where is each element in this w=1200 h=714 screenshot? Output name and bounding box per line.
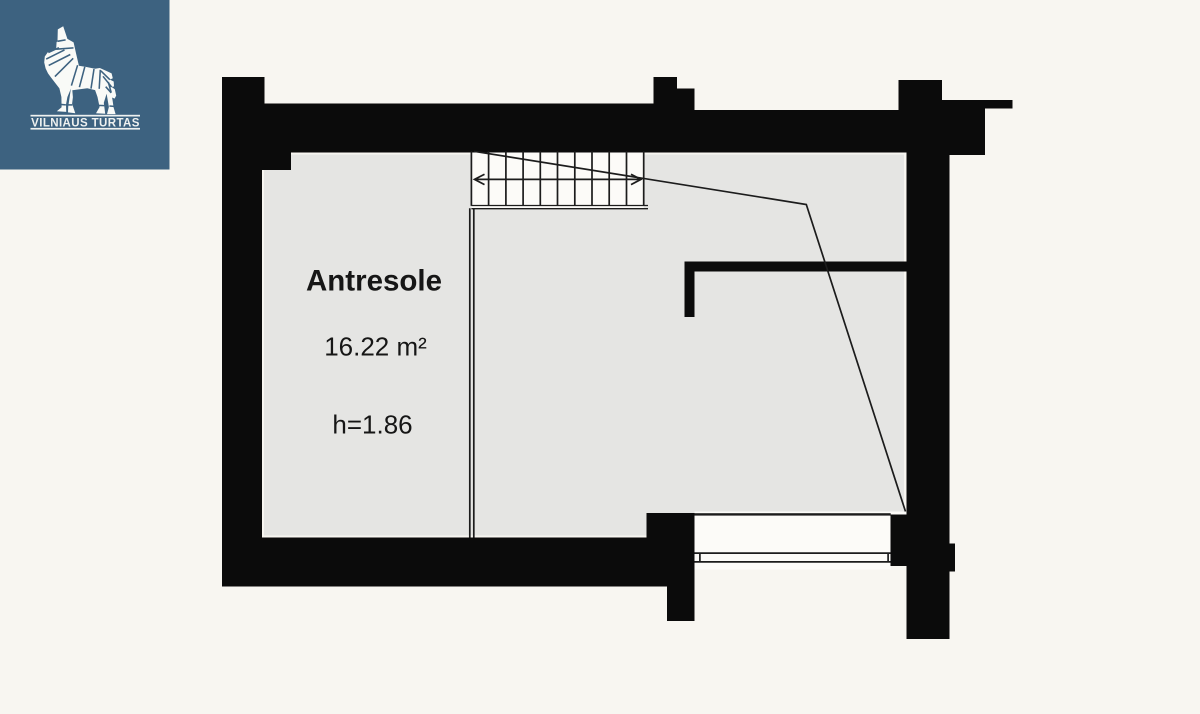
svg-text:h=1.86: h=1.86 [332,410,412,440]
svg-text:Antresole: Antresole [306,265,442,298]
svg-text:VILNIAUS TURTAS: VILNIAUS TURTAS [31,117,140,129]
svg-text:16.22 m²: 16.22 m² [324,332,427,362]
